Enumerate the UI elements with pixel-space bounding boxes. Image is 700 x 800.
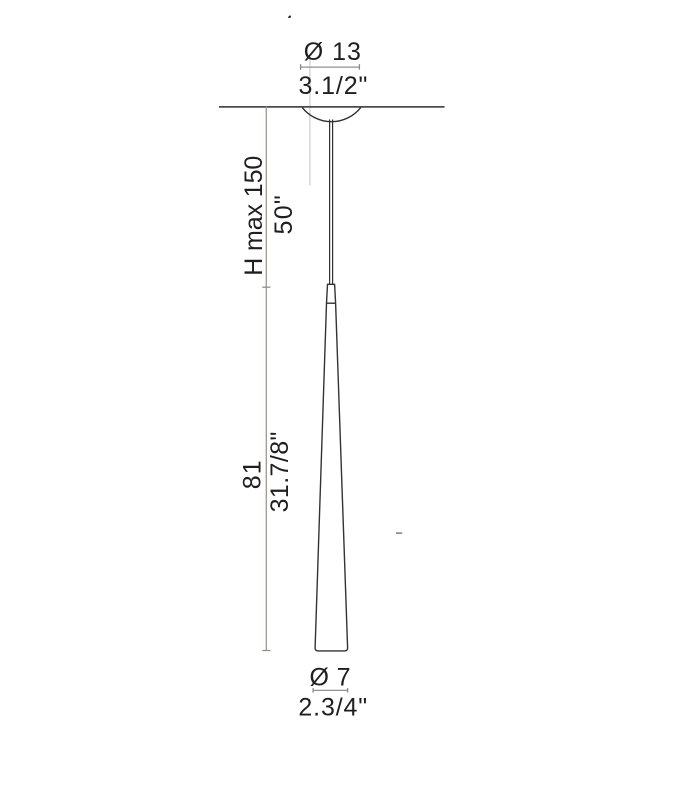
svg-text:H max 150: H max 150 <box>240 156 268 276</box>
svg-text:Ø 13: Ø 13 <box>304 38 362 66</box>
svg-text:81: 81 <box>239 459 267 489</box>
svg-text:3.1/2": 3.1/2" <box>298 72 368 100</box>
svg-text:50": 50" <box>270 194 298 235</box>
svg-text:2.3/4": 2.3/4" <box>298 694 368 722</box>
svg-text:Ø 7: Ø 7 <box>310 664 351 692</box>
svg-text:31.7/8": 31.7/8" <box>266 431 294 512</box>
